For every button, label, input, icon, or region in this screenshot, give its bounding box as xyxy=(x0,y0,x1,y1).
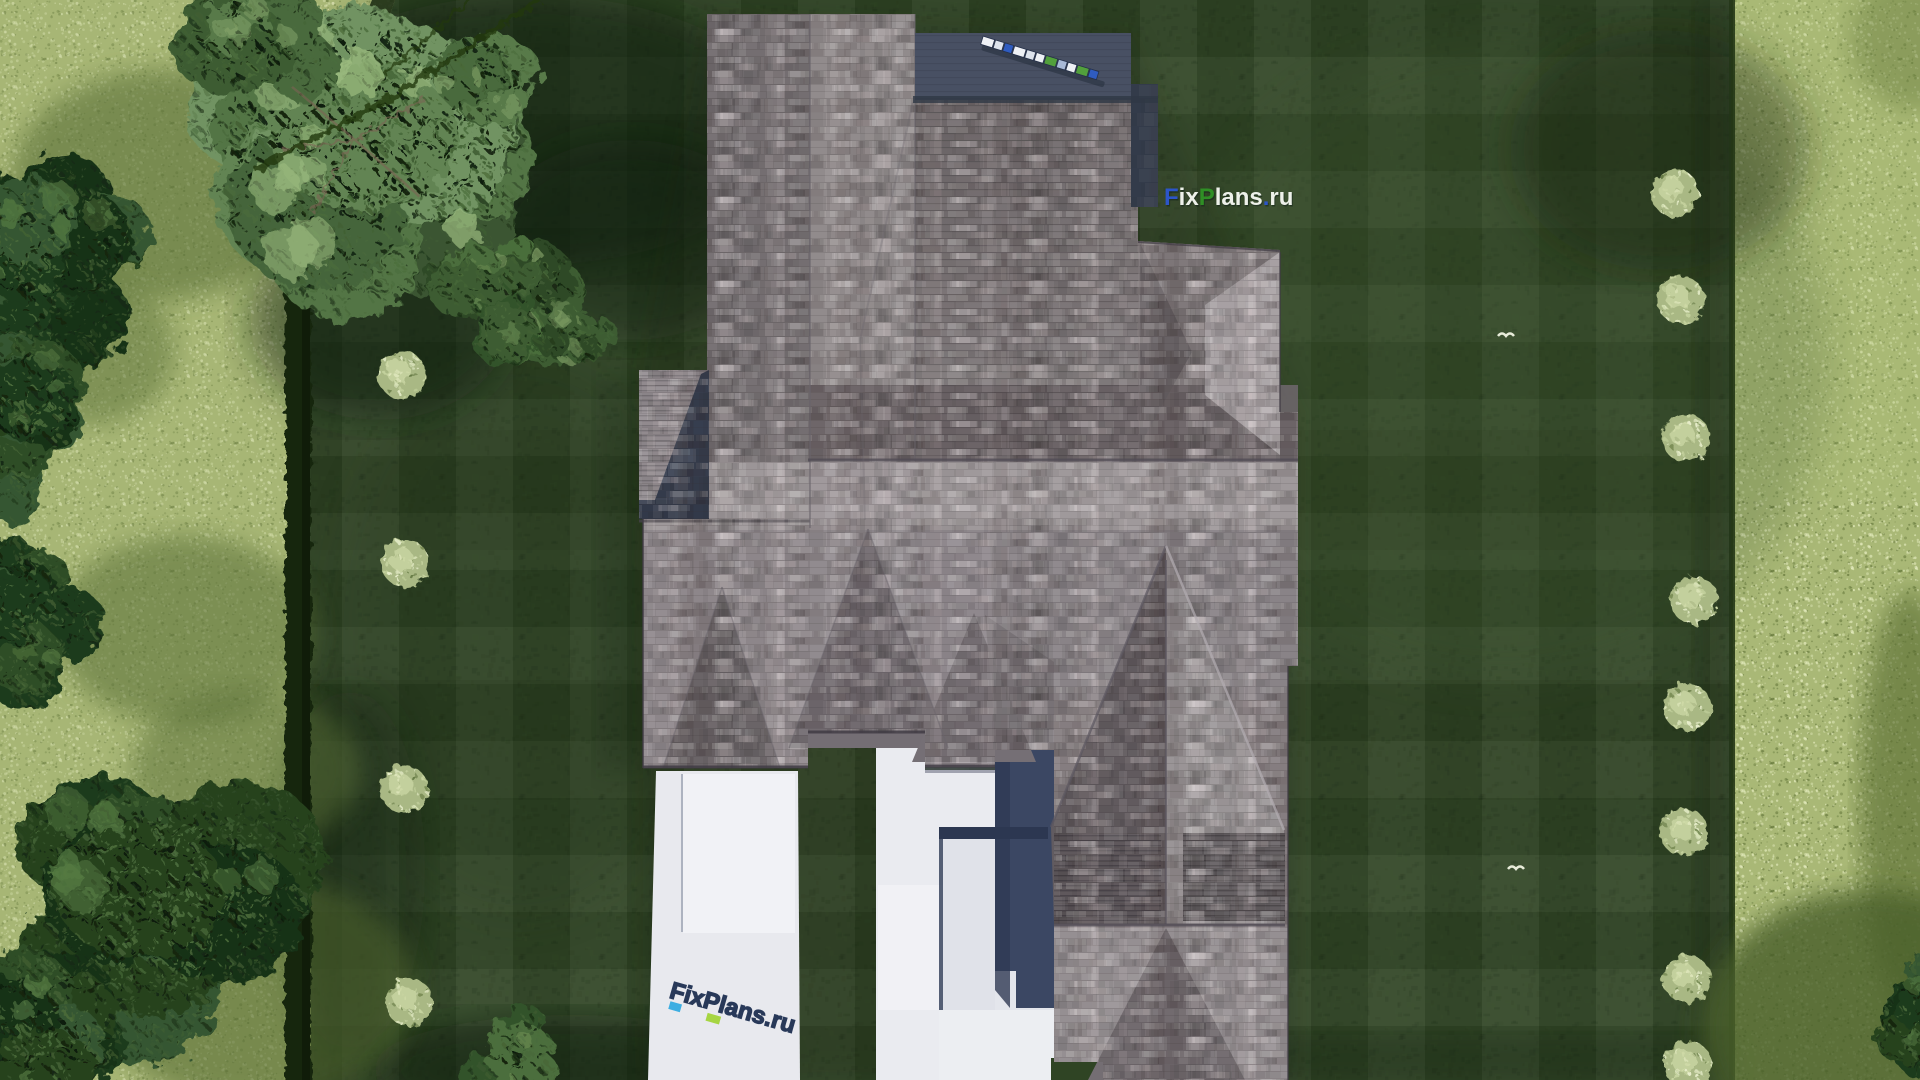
svg-text:FixPlans.ru: FixPlans.ru xyxy=(1164,184,1293,211)
